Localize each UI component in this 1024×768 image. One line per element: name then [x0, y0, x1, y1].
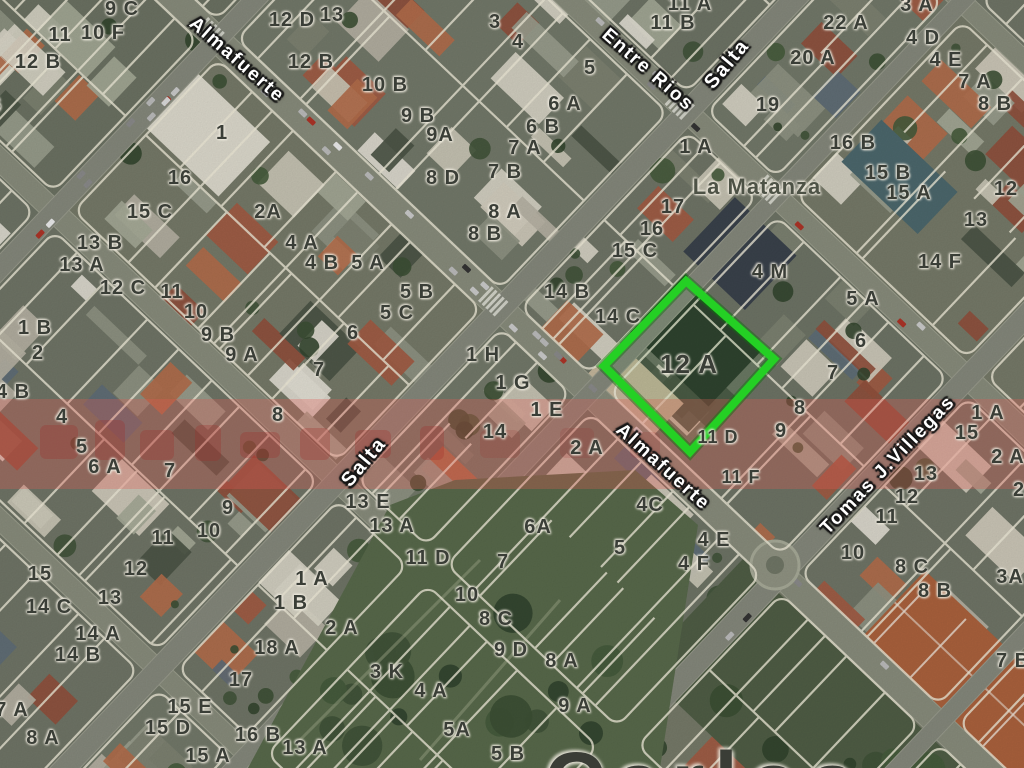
parcel-label: 4: [56, 407, 68, 427]
parcel-label: 4 M: [752, 262, 788, 282]
parcel-label: 11 B: [650, 13, 695, 33]
parcel-label: 8 B: [918, 581, 952, 601]
district-label: La Matanza: [693, 174, 822, 200]
parcel-label: 10: [455, 585, 479, 605]
parcel-label: 1 A: [295, 569, 328, 589]
parcel-label: 2 A: [570, 438, 603, 458]
parcel-label: 8 B: [978, 94, 1012, 114]
parcel-label: 8 A: [488, 202, 521, 222]
parcel-label: 15 B: [865, 163, 911, 183]
parcel-label: 12 D: [269, 10, 315, 30]
parcel-label: 20 A: [790, 48, 836, 68]
parcel-label: 15: [955, 423, 979, 443]
parcel-label: 22 A: [823, 13, 869, 33]
parcel-label: 15 C: [612, 241, 658, 261]
parcel-label: 12: [124, 559, 148, 579]
parcel-label: 11: [160, 282, 183, 302]
parcel-label: 2: [32, 343, 44, 363]
parcel-label: 16: [168, 168, 192, 188]
parcel-label: 5: [76, 437, 88, 457]
parcel-label: 6: [855, 331, 867, 351]
map-labels-layer: 9 C10 F1112 B612 D1312 B11615 C2A13 B4 A…: [0, 0, 1024, 768]
parcel-label: 13 A: [282, 738, 328, 758]
parcel-label: 11: [875, 507, 898, 527]
parcel-label: 7 B: [996, 651, 1024, 671]
parcel-label: 8 D: [426, 168, 460, 188]
parcel-label: 2 A: [325, 618, 358, 638]
parcel-label: 5A: [443, 720, 471, 740]
parcel-label: 3 K: [370, 662, 404, 682]
parcel-label: 7 A: [958, 72, 991, 92]
parcel-label: 9 B: [201, 325, 235, 345]
parcel-label: 14 B: [544, 282, 590, 302]
parcel-label: 4 D: [906, 28, 940, 48]
parcel-label: 7: [164, 461, 176, 481]
parcel-label: 2 A: [991, 447, 1024, 467]
parcel-label: 3 A: [900, 0, 933, 15]
parcel-label: 16: [640, 219, 664, 239]
parcel-label: 4 B: [0, 382, 30, 402]
parcel-label: 13: [914, 464, 938, 484]
parcel-label: 5 B: [491, 744, 525, 764]
parcel-label: 8 A: [545, 651, 578, 671]
parcel-label: 1 E: [530, 400, 563, 420]
parcel-label: 15 C: [127, 202, 173, 222]
parcel-label: 11 D: [697, 428, 738, 446]
parcel-label: 12: [994, 179, 1018, 199]
parcel-label: 1: [216, 123, 228, 143]
parcel-label: 9 A: [558, 696, 591, 716]
parcel-label: 5 B: [400, 282, 434, 302]
parcel-label: 13 A: [59, 255, 105, 275]
parcel-label: 4 A: [414, 681, 447, 701]
parcel-label: 5: [614, 538, 626, 558]
parcel-label: 4 E: [929, 50, 962, 70]
parcel-label: 4 B: [305, 253, 339, 273]
parcel-label: 12 C: [100, 278, 146, 298]
parcel-label: 13: [320, 5, 344, 25]
parcel-label: 1 H: [466, 345, 500, 365]
parcel-label: 9A: [426, 125, 454, 145]
parcel-label: 1 G: [495, 373, 530, 393]
parcel-label: 7 B: [488, 162, 522, 182]
parcel-label: 14 A: [75, 624, 121, 644]
parcel-label: 10: [197, 521, 221, 541]
parcel-label: 8 C: [895, 557, 929, 577]
parcel-label: 9: [775, 421, 787, 441]
parcel-label: 4 F: [678, 554, 710, 574]
parcel-label: 15 D: [145, 718, 191, 738]
parcel-label: 1 A: [679, 137, 712, 157]
parcel-label: 12: [895, 487, 919, 507]
parcel-label: 4: [512, 32, 524, 52]
parcel-label: 13 B: [77, 233, 123, 253]
parcel-label: 18 A: [254, 638, 300, 658]
parcel-label: 5 C: [380, 303, 414, 323]
parcel-label: 3A: [996, 567, 1024, 587]
parcel-label: 9 A: [225, 345, 258, 365]
parcel-label: 7: [497, 552, 509, 572]
cutoff-caption: Carlos: [544, 740, 865, 768]
parcel-label: 12 A: [660, 351, 718, 377]
parcel-label: 13: [964, 210, 988, 230]
parcel-label: 11 D: [405, 548, 450, 568]
parcel-label: 7 A: [508, 138, 541, 158]
street-label: Salta: [338, 433, 390, 490]
parcel-label: 10 F: [81, 23, 125, 43]
parcel-label: 2: [1013, 480, 1024, 500]
parcel-label: 3: [489, 12, 501, 32]
parcel-label: 6 A: [548, 94, 581, 114]
parcel-label: 11 F: [721, 468, 760, 486]
parcel-label: 17: [229, 670, 253, 690]
parcel-label: 13 E: [345, 492, 390, 512]
parcel-label: 11: [48, 25, 71, 45]
parcel-label: 16 B: [830, 133, 876, 153]
parcel-label: 6: [0, 95, 2, 115]
parcel-label: 15 A: [185, 746, 231, 766]
parcel-label: 5: [584, 58, 596, 78]
parcel-label: 1 B: [274, 593, 308, 613]
parcel-label: 6 B: [526, 117, 560, 137]
parcel-label: 5 A: [846, 289, 879, 309]
parcel-label: 15 E: [167, 697, 212, 717]
parcel-label: 2A: [254, 202, 282, 222]
parcel-label: 9 C: [105, 0, 139, 19]
parcel-label: 14: [483, 422, 507, 442]
parcel-label: 8 C: [479, 609, 513, 629]
parcel-label: 17: [661, 197, 685, 217]
parcel-label: 1 A: [971, 403, 1004, 423]
parcel-label: 7: [827, 363, 839, 383]
parcel-label: 15 A: [886, 183, 932, 203]
parcel-label: 16 B: [235, 725, 281, 745]
parcel-label: 14 B: [55, 645, 101, 665]
parcel-label: 9 D: [494, 640, 528, 660]
parcel-label: 14 C: [26, 597, 72, 617]
satellite-map[interactable]: 9 C10 F1112 B612 D1312 B11615 C2A13 B4 A…: [0, 0, 1024, 768]
parcel-label: 6 A: [88, 457, 121, 477]
parcel-label: 8: [794, 398, 806, 418]
street-label: Entre Rios: [598, 25, 697, 115]
parcel-label: 12 B: [288, 52, 334, 72]
parcel-label: 7: [313, 360, 325, 380]
parcel-label: 8 B: [468, 224, 502, 244]
parcel-label: 11: [151, 528, 174, 548]
parcel-label: 8: [272, 405, 284, 425]
parcel-label: 14 C: [595, 307, 641, 327]
parcel-label: 19: [756, 95, 780, 115]
parcel-label: 1 B: [18, 318, 52, 338]
parcel-label: 4 A: [285, 233, 318, 253]
parcel-label: 5 A: [351, 253, 384, 273]
parcel-label: 6: [347, 323, 359, 343]
parcel-label: 7 A: [0, 700, 29, 720]
parcel-label: 10: [841, 543, 865, 563]
parcel-label: 10 B: [362, 75, 408, 95]
parcel-label: 13: [98, 588, 122, 608]
parcel-label: 6A: [524, 517, 552, 537]
street-label: Salta: [701, 35, 753, 92]
parcel-label: 10: [184, 302, 208, 322]
parcel-label: 15: [28, 564, 52, 584]
parcel-label: 13 A: [369, 516, 415, 536]
parcel-label: 9: [222, 498, 234, 518]
parcel-label: 4 E: [697, 530, 730, 550]
parcel-label: 9 B: [401, 106, 435, 126]
parcel-label: 8 A: [26, 728, 59, 748]
parcel-label: 4C: [636, 495, 664, 515]
parcel-label: 14 F: [918, 252, 962, 272]
parcel-label: 12 B: [15, 52, 61, 72]
